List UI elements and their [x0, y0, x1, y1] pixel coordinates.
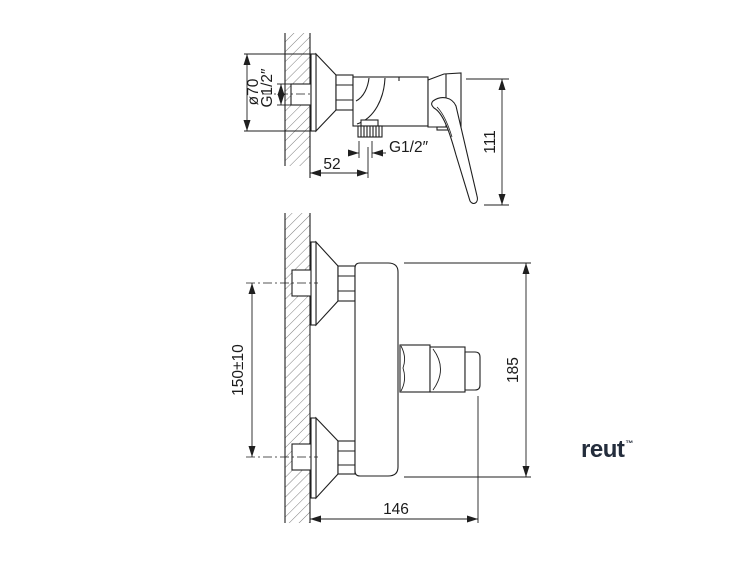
front-escutcheon-bottom — [311, 418, 355, 498]
side-escutcheon — [311, 54, 336, 131]
front-view: 150±10 185 146 — [230, 213, 531, 523]
label-height-with-lever: 111 — [482, 130, 499, 154]
label-overall-height: 185 — [505, 357, 522, 383]
mixer-body-front — [355, 263, 398, 476]
handle-hub-front — [400, 345, 480, 392]
dim-outlet-thread — [349, 141, 386, 158]
front-wall-section — [285, 213, 310, 523]
side-outlet-thread — [358, 120, 382, 137]
label-overall-width: 146 — [383, 501, 409, 518]
side-inlet-pipe — [291, 84, 311, 105]
side-mounting-nut — [336, 75, 353, 110]
front-escutcheon-top — [311, 242, 355, 325]
brand-logo-text: reut — [581, 436, 624, 463]
label-wall-to-outlet: 52 — [323, 156, 340, 173]
brand-logo-mark: ™ — [625, 439, 633, 448]
technical-drawing-page: ø70 G1/2″ G1/2″ 52 111 — [0, 0, 756, 567]
side-view: ø70 G1/2″ G1/2″ 52 111 — [244, 33, 509, 205]
mixer-body-side — [353, 77, 428, 126]
label-inlet-spacing: 150±10 — [230, 344, 247, 396]
label-outlet-thread: G1/2″ — [389, 139, 429, 156]
brand-logo: reut™ — [581, 438, 633, 462]
label-inlet-thread: G1/2″ — [259, 68, 276, 108]
drawing-canvas: ø70 G1/2″ G1/2″ 52 111 — [0, 0, 756, 567]
